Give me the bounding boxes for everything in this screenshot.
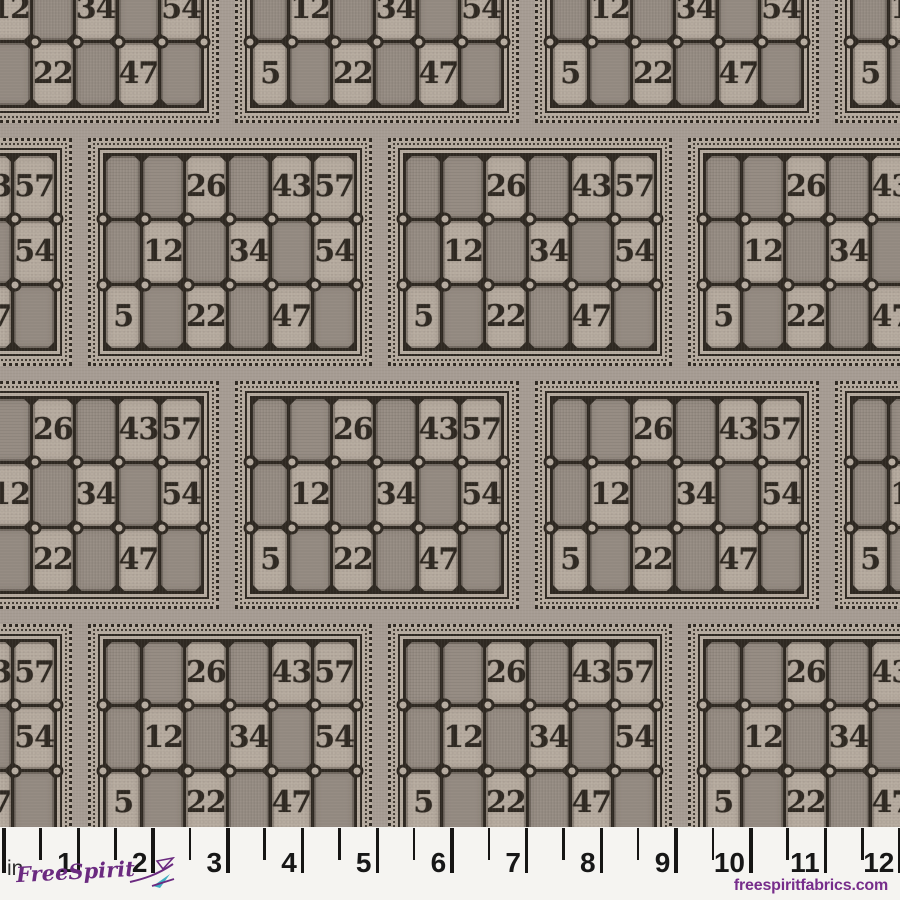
ruler-number: 3 (182, 849, 222, 877)
grid-intersection-circle (713, 521, 726, 534)
card-cell-number: 12 (0, 0, 30, 24)
card-cell: 57 (14, 642, 54, 704)
card-cell: 22 (633, 529, 673, 591)
card-cell: 57 (314, 156, 354, 218)
card-cell (443, 772, 483, 827)
card-cell: 47 (572, 772, 612, 827)
card-cell (0, 221, 11, 283)
card-cell-number: 57 (614, 658, 654, 688)
card-cell-number: 47 (872, 788, 900, 818)
card-cell (719, 0, 759, 40)
card-cell: 12 (0, 464, 30, 526)
grid-intersection-circle (498, 455, 511, 468)
grid-intersection-circle (8, 698, 21, 711)
card-cell (614, 772, 654, 827)
grid-intersection-circle (498, 35, 511, 48)
grid-intersection-circle (844, 35, 857, 48)
card-cell (333, 464, 373, 526)
card-cell-number: 47 (272, 788, 312, 818)
card-cell: 47 (419, 43, 459, 105)
card-cell (872, 707, 900, 769)
card-cell: 5 (106, 772, 140, 827)
card-cell-number: 12 (890, 0, 900, 24)
card-cell (853, 0, 887, 40)
grid-intersection-circle (544, 521, 557, 534)
card-cell-number: 43 (872, 658, 900, 688)
grid-intersection-circle (51, 698, 64, 711)
card-grid: 26435712345452247 (0, 396, 204, 594)
card-cell: 22 (786, 286, 826, 348)
grid-intersection-circle (713, 35, 726, 48)
lotto-card: 26435712345452247 (0, 138, 72, 366)
card-cell-number: 12 (590, 0, 630, 24)
card-cell-number: 22 (33, 545, 73, 575)
grid-intersection-circle (413, 521, 426, 534)
grid-intersection-circle (455, 35, 468, 48)
grid-intersection-circle (844, 521, 857, 534)
card-grid: 26435712345452247 (850, 396, 900, 594)
grid-intersection-circle (651, 278, 664, 291)
card-cell: 34 (376, 464, 416, 526)
card-cell: 47 (272, 286, 312, 348)
card-cell-number: 47 (119, 59, 159, 89)
card-cell (253, 0, 287, 40)
card-cell-number: 47 (872, 302, 900, 332)
grid-intersection-circle (51, 278, 64, 291)
grid-intersection-circle (371, 35, 384, 48)
grid-intersection-circle (139, 278, 152, 291)
card-cell (161, 43, 201, 105)
card-cell-number: 57 (761, 415, 801, 445)
card-cell (443, 156, 483, 218)
card-cell-number: 43 (0, 172, 11, 202)
card-cell: 22 (33, 529, 73, 591)
card-cell (706, 707, 740, 769)
card-cell-number: 34 (376, 480, 416, 510)
card-cell-number: 47 (419, 545, 459, 575)
lotto-card: 26435712345452247 (835, 381, 900, 609)
card-cell: 43 (572, 642, 612, 704)
card-cell (161, 529, 201, 591)
card-cell-number: 54 (461, 480, 501, 510)
card-cell-number: 5 (413, 302, 433, 332)
card-cell-number: 43 (419, 415, 459, 445)
ruler-number: 6 (406, 849, 446, 877)
card-cell-number: 12 (143, 237, 183, 267)
grid-intersection-circle (671, 35, 684, 48)
grid-intersection-circle (266, 764, 279, 777)
card-cell-number: 12 (890, 480, 900, 510)
lotto-card: 26435712345452247 (235, 0, 519, 123)
grid-intersection-circle (8, 212, 21, 225)
card-cell-number: 22 (786, 788, 826, 818)
grid-intersection-circle (51, 212, 64, 225)
card-cell (590, 529, 630, 591)
card-cell-number: 47 (0, 788, 11, 818)
card-cell-number: 54 (161, 480, 201, 510)
card-cell: 12 (143, 707, 183, 769)
grid-intersection-circle (224, 212, 237, 225)
card-cell (890, 43, 900, 105)
card-cell (0, 399, 30, 461)
card-cell-number: 34 (376, 0, 416, 24)
card-grid: 26435712345452247 (703, 639, 900, 827)
card-cell (290, 399, 330, 461)
card-cell (106, 156, 140, 218)
card-grid: 26435712345452247 (550, 0, 804, 108)
card-cell-number: 57 (161, 415, 201, 445)
card-cell (706, 156, 740, 218)
card-cell: 22 (486, 772, 526, 827)
card-cell-number: 43 (719, 415, 759, 445)
lotto-card: 26435712345452247 (88, 138, 372, 366)
grid-intersection-circle (755, 35, 768, 48)
card-cell-number: 22 (186, 788, 226, 818)
fabric-swatch-image: 2643571234545224726435712345452247264357… (0, 0, 900, 900)
card-cell: 12 (743, 707, 783, 769)
card-grid: 26435712345452247 (250, 0, 504, 108)
card-cell (186, 707, 226, 769)
card-grid: 26435712345452247 (250, 396, 504, 594)
grid-intersection-circle (651, 764, 664, 777)
card-cell (143, 286, 183, 348)
grid-intersection-circle (586, 521, 599, 534)
card-cell (143, 642, 183, 704)
grid-intersection-circle (697, 698, 710, 711)
card-cell: 34 (829, 221, 869, 283)
ruler-tick-inch (450, 828, 454, 873)
card-cell: 57 (461, 399, 501, 461)
card-cell (529, 772, 569, 827)
grid-intersection-circle (181, 698, 194, 711)
card-cell (461, 43, 501, 105)
card-cell-number: 22 (633, 59, 673, 89)
card-cell: 22 (186, 286, 226, 348)
card-cell-number: 34 (829, 723, 869, 753)
card-cell-number: 57 (14, 658, 54, 688)
card-cell-number: 34 (76, 0, 116, 24)
card-cell-number: 26 (186, 658, 226, 688)
grid-intersection-circle (498, 521, 511, 534)
card-cell (486, 707, 526, 769)
card-cell-number: 47 (119, 545, 159, 575)
ruler-tick-inch (674, 828, 678, 873)
card-cell (829, 156, 869, 218)
grid-intersection-circle (886, 35, 899, 48)
lotto-card: 26435712345452247 (0, 381, 219, 609)
card-cell: 34 (529, 221, 569, 283)
card-cell-number: 54 (314, 237, 354, 267)
card-cell: 43 (872, 156, 900, 218)
lotto-card: 26435712345452247 (388, 624, 672, 827)
card-cell-number: 22 (186, 302, 226, 332)
grid-intersection-circle (781, 278, 794, 291)
card-cell-number: 47 (572, 788, 612, 818)
grid-intersection-circle (455, 455, 468, 468)
grid-intersection-circle (866, 764, 879, 777)
grid-intersection-circle (824, 698, 837, 711)
grid-intersection-circle (71, 521, 84, 534)
card-cell (743, 642, 783, 704)
card-cell-number: 26 (486, 172, 526, 202)
grid-intersection-circle (739, 212, 752, 225)
card-cell (272, 707, 312, 769)
card-cell-number: 5 (713, 302, 733, 332)
card-cell (419, 0, 459, 40)
grid-intersection-circle (97, 764, 110, 777)
card-cell (890, 399, 900, 461)
grid-intersection-circle (481, 278, 494, 291)
card-cell-number: 5 (860, 545, 880, 575)
card-cell-number: 54 (614, 723, 654, 753)
card-cell-number: 43 (572, 658, 612, 688)
card-cell: 12 (590, 464, 630, 526)
card-cell: 54 (614, 707, 654, 769)
card-cell: 34 (76, 0, 116, 40)
card-cell: 47 (119, 529, 159, 591)
ruler-tick-inch (824, 828, 828, 873)
grid-intersection-circle (481, 764, 494, 777)
card-cell (529, 642, 569, 704)
grid-intersection-circle (328, 521, 341, 534)
card-cell: 26 (786, 156, 826, 218)
card-cell: 5 (253, 43, 287, 105)
grid-intersection-circle (608, 764, 621, 777)
card-cell: 43 (419, 399, 459, 461)
card-cell (614, 286, 654, 348)
grid-intersection-circle (308, 764, 321, 777)
grid-intersection-circle (697, 212, 710, 225)
grid-intersection-circle (886, 521, 899, 534)
card-cell (119, 464, 159, 526)
grid-intersection-circle (371, 521, 384, 534)
card-cell (529, 286, 569, 348)
card-cell-number: 5 (413, 788, 433, 818)
card-cell: 5 (706, 772, 740, 827)
card-cell: 5 (853, 43, 887, 105)
card-grid: 26435712345452247 (0, 153, 57, 351)
card-cell-number: 54 (461, 0, 501, 24)
card-cell: 34 (829, 707, 869, 769)
grid-intersection-circle (224, 764, 237, 777)
card-cell-number: 54 (14, 723, 54, 753)
grid-intersection-circle (181, 764, 194, 777)
grid-intersection-circle (651, 212, 664, 225)
grid-intersection-circle (798, 455, 811, 468)
card-cell: 57 (761, 399, 801, 461)
card-cell-number: 22 (486, 788, 526, 818)
card-cell (229, 772, 269, 827)
grid-intersection-circle (244, 455, 257, 468)
card-cell: 34 (229, 707, 269, 769)
card-cell-number: 34 (829, 237, 869, 267)
card-cell (376, 43, 416, 105)
grid-intersection-circle (524, 212, 537, 225)
card-cell (376, 399, 416, 461)
grid-intersection-circle (628, 455, 641, 468)
card-cell: 54 (614, 221, 654, 283)
card-cell-number: 22 (486, 302, 526, 332)
grid-intersection-circle (244, 521, 257, 534)
card-cell-number: 22 (333, 545, 373, 575)
card-cell-number: 12 (443, 723, 483, 753)
card-cell (633, 464, 673, 526)
card-cell: 43 (0, 642, 11, 704)
grid-intersection-circle (181, 278, 194, 291)
card-cell: 5 (553, 43, 587, 105)
freespirit-bird-icon (129, 857, 175, 889)
card-cell (761, 529, 801, 591)
card-cell: 57 (314, 642, 354, 704)
ruler-number: 11 (780, 849, 820, 877)
card-cell (743, 286, 783, 348)
card-cell: 12 (590, 0, 630, 40)
card-cell-number: 12 (143, 723, 183, 753)
grid-intersection-circle (713, 455, 726, 468)
card-cell (106, 221, 140, 283)
card-cell-number: 47 (272, 302, 312, 332)
grid-intersection-circle (198, 455, 211, 468)
card-cell-number: 43 (572, 172, 612, 202)
ruler-number: 5 (332, 849, 372, 877)
lotto-card: 26435712345452247 (688, 138, 900, 366)
grid-intersection-circle (286, 455, 299, 468)
card-cell: 43 (272, 156, 312, 218)
card-cell (872, 221, 900, 283)
grid-intersection-circle (371, 455, 384, 468)
card-cell: 22 (486, 286, 526, 348)
grid-intersection-circle (628, 521, 641, 534)
grid-intersection-circle (413, 455, 426, 468)
grid-intersection-circle (139, 212, 152, 225)
card-cell (486, 221, 526, 283)
card-cell: 34 (229, 221, 269, 283)
grid-intersection-circle (266, 698, 279, 711)
card-cell: 57 (614, 156, 654, 218)
card-cell: 26 (486, 156, 526, 218)
card-cell (743, 156, 783, 218)
card-cell (76, 529, 116, 591)
card-cell: 26 (786, 642, 826, 704)
grid-intersection-circle (113, 455, 126, 468)
card-cell: 26 (333, 399, 373, 461)
grid-intersection-circle (739, 764, 752, 777)
card-cell (443, 642, 483, 704)
grid-intersection-circle (308, 698, 321, 711)
grid-intersection-circle (524, 764, 537, 777)
card-cell: 12 (890, 0, 900, 40)
grid-intersection-circle (8, 278, 21, 291)
card-cell (590, 43, 630, 105)
card-cell (572, 707, 612, 769)
grid-intersection-circle (439, 278, 452, 291)
card-cell-number: 12 (0, 480, 30, 510)
card-cell: 54 (161, 0, 201, 40)
card-cell (76, 43, 116, 105)
grid-intersection-circle (224, 698, 237, 711)
grid-intersection-circle (97, 212, 110, 225)
lotto-card: 26435712345452247 (0, 624, 72, 827)
card-cell: 47 (872, 772, 900, 827)
card-cell (406, 642, 440, 704)
ruler-tick-inch (525, 828, 529, 873)
card-cell: 26 (186, 156, 226, 218)
grid-intersection-circle (28, 35, 41, 48)
card-cell (590, 399, 630, 461)
card-cell: 12 (290, 464, 330, 526)
card-cell: 26 (486, 642, 526, 704)
card-cell (290, 43, 330, 105)
card-cell (14, 286, 54, 348)
ruler-number: 12 (854, 849, 894, 877)
grid-intersection-circle (544, 455, 557, 468)
card-cell-number: 54 (161, 0, 201, 24)
card-cell: 57 (614, 642, 654, 704)
card-cell: 57 (14, 156, 54, 218)
card-cell: 43 (572, 156, 612, 218)
freespirit-logo: FreeSpirit (16, 861, 175, 889)
card-cell: 26 (33, 399, 73, 461)
card-cell-number: 54 (761, 0, 801, 24)
card-cell: 47 (872, 286, 900, 348)
card-cell (890, 529, 900, 591)
card-cell (406, 707, 440, 769)
card-cell (33, 464, 73, 526)
card-cell-number: 54 (314, 723, 354, 753)
grid-intersection-circle (781, 764, 794, 777)
card-cell-number: 5 (113, 302, 133, 332)
card-cell (106, 707, 140, 769)
card-cell: 5 (853, 529, 887, 591)
grid-intersection-circle (71, 455, 84, 468)
card-cell (829, 642, 869, 704)
grid-intersection-circle (566, 698, 579, 711)
card-cell-number: 26 (186, 172, 226, 202)
card-cell: 26 (186, 642, 226, 704)
card-cell-number: 12 (290, 0, 330, 24)
card-cell-number: 57 (461, 415, 501, 445)
card-cell: 54 (761, 464, 801, 526)
card-cell (529, 156, 569, 218)
card-cell: 34 (676, 464, 716, 526)
card-cell (743, 772, 783, 827)
card-cell-number: 12 (290, 480, 330, 510)
card-cell (143, 156, 183, 218)
card-cell: 47 (419, 529, 459, 591)
card-cell-number: 57 (614, 172, 654, 202)
lotto-card: 26435712345452247 (688, 624, 900, 827)
card-cell-number: 5 (260, 545, 280, 575)
card-cell (761, 43, 801, 105)
card-cell (853, 399, 887, 461)
card-cell-number: 5 (560, 545, 580, 575)
card-cell: 47 (0, 772, 11, 827)
card-grid: 26435712345452247 (403, 639, 657, 827)
card-cell-number: 34 (676, 0, 716, 24)
card-cell: 43 (272, 642, 312, 704)
card-cell-number: 22 (333, 59, 373, 89)
card-cell-number: 22 (33, 59, 73, 89)
grid-intersection-circle (866, 278, 879, 291)
ruler-number: 8 (556, 849, 596, 877)
lotto-card: 26435712345452247 (235, 381, 519, 609)
card-grid: 26435712345452247 (403, 153, 657, 351)
card-cell-number: 26 (786, 658, 826, 688)
grid-intersection-circle (739, 278, 752, 291)
ruler-tick-inch (301, 828, 305, 873)
card-cell-number: 12 (443, 237, 483, 267)
card-grid: 26435712345452247 (850, 0, 900, 108)
